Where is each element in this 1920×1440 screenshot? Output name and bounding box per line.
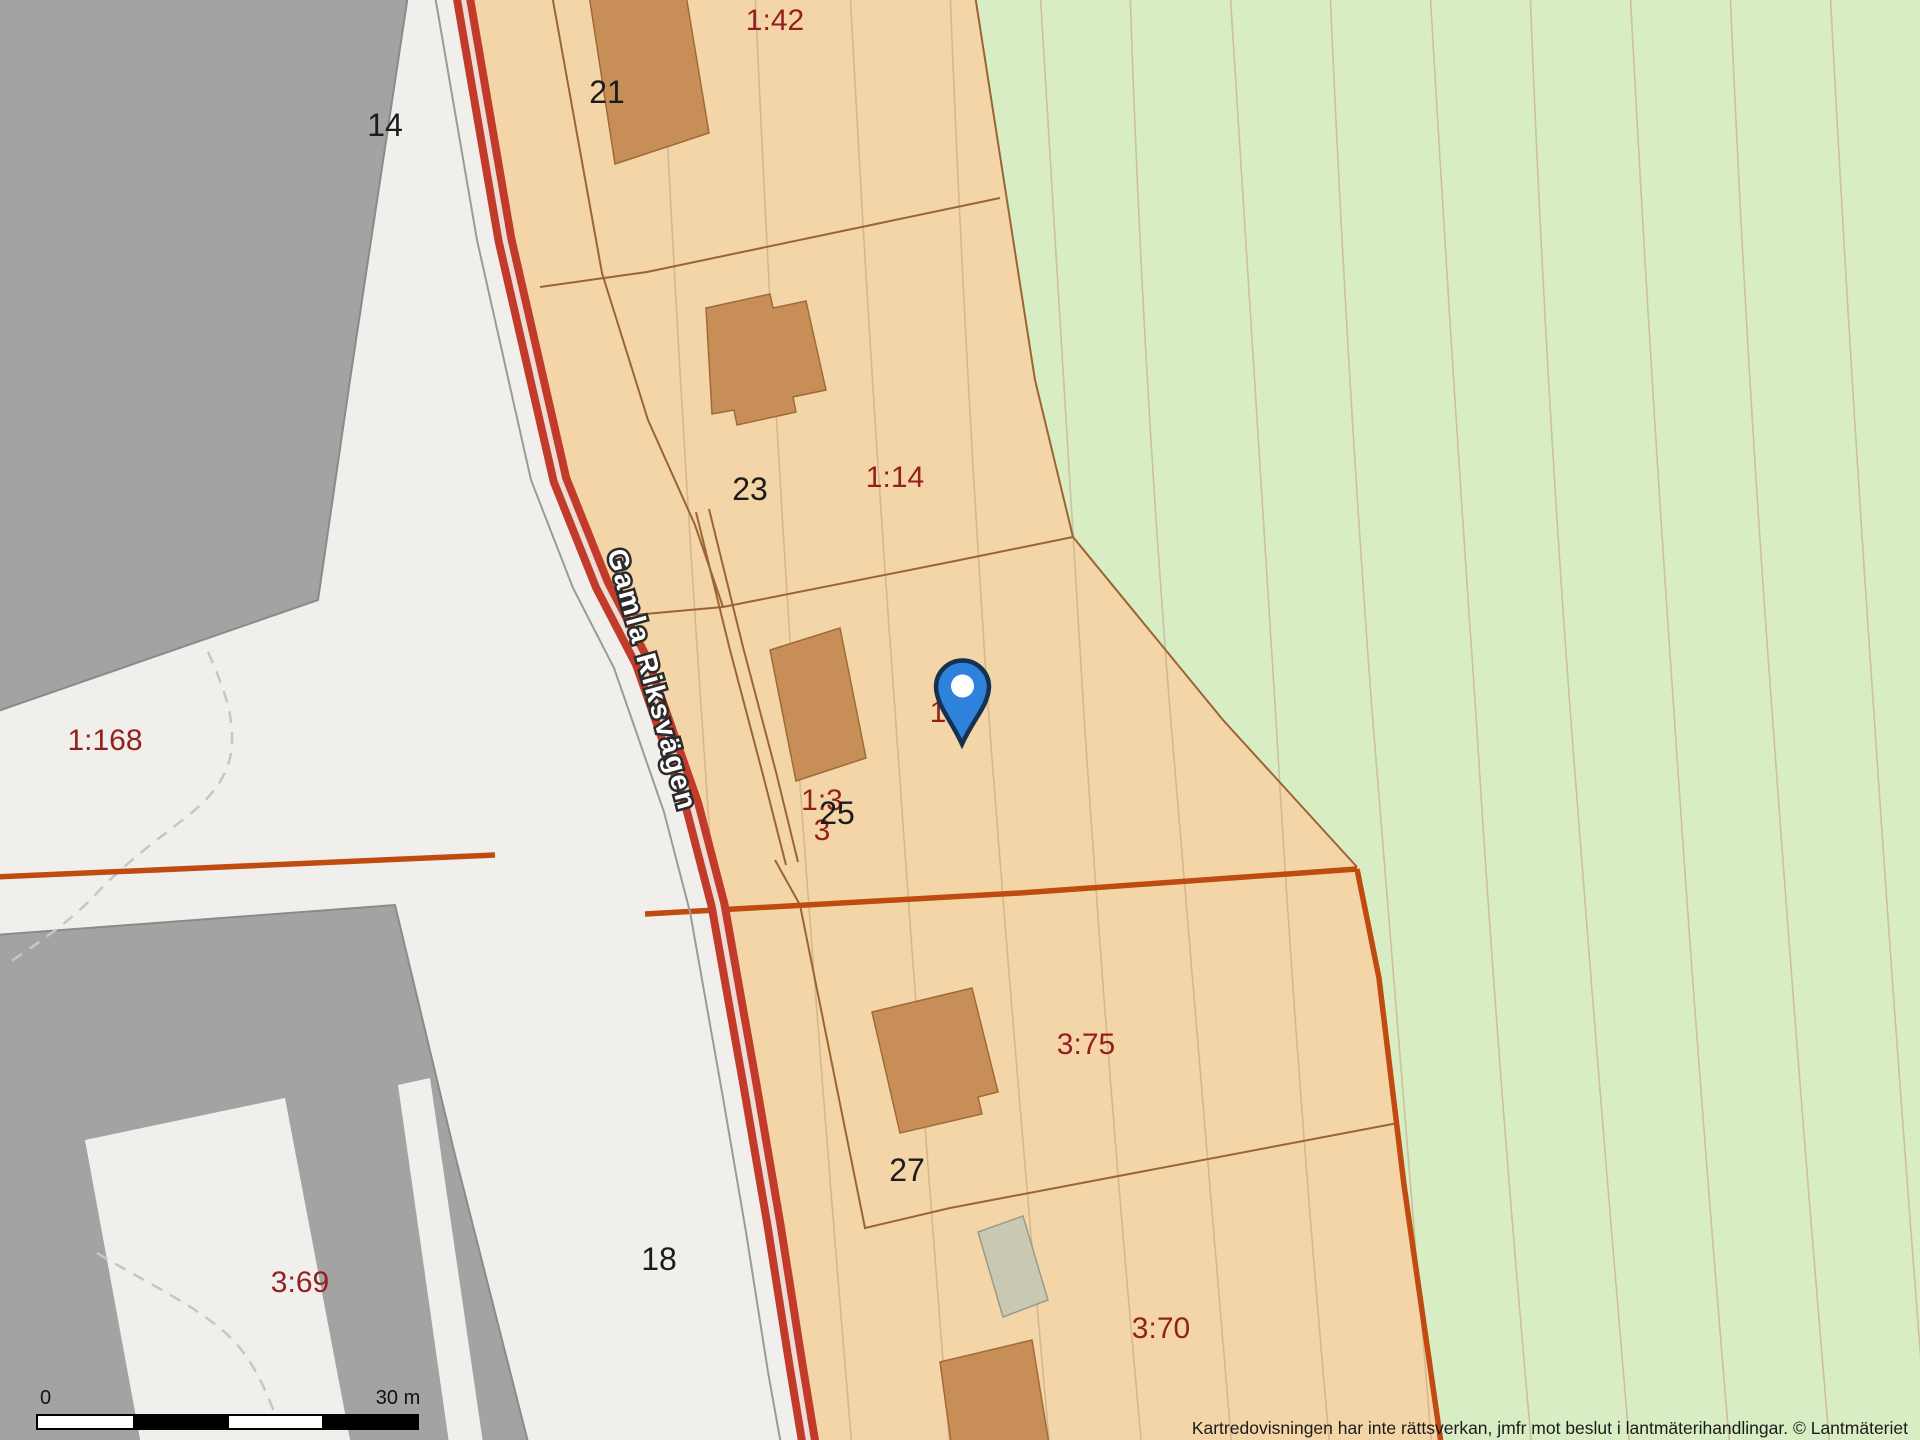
parcel-label: 1:14 [866, 461, 924, 494]
parcel-label: 1:42 [746, 4, 804, 37]
address-label: 18 [641, 1241, 677, 1277]
parcel-label: 3:70 [1132, 1312, 1190, 1345]
address-label: 25 [819, 795, 855, 831]
map-canvas[interactable]: Gamla Riksvägen 1:421:141:1681:3313:753:… [0, 0, 1920, 1440]
parcel-label: 1:168 [67, 724, 142, 757]
address-label: 23 [732, 471, 768, 507]
address-label: 21 [589, 74, 625, 110]
pin-hole [951, 675, 974, 698]
address-label: 27 [889, 1152, 925, 1188]
parcel-label: 3:69 [271, 1266, 329, 1299]
parcel-label: 3:75 [1057, 1028, 1115, 1061]
scale-zero-label: 0 [40, 1387, 51, 1409]
map-viewport[interactable]: Gamla Riksvägen 1:421:141:1681:3313:753:… [0, 0, 1920, 1440]
scale-max-label: 30 m [376, 1387, 420, 1409]
copyright-text: Kartredovisningen har inte rättsverkan, … [1192, 1418, 1908, 1438]
address-label: 14 [367, 107, 403, 143]
